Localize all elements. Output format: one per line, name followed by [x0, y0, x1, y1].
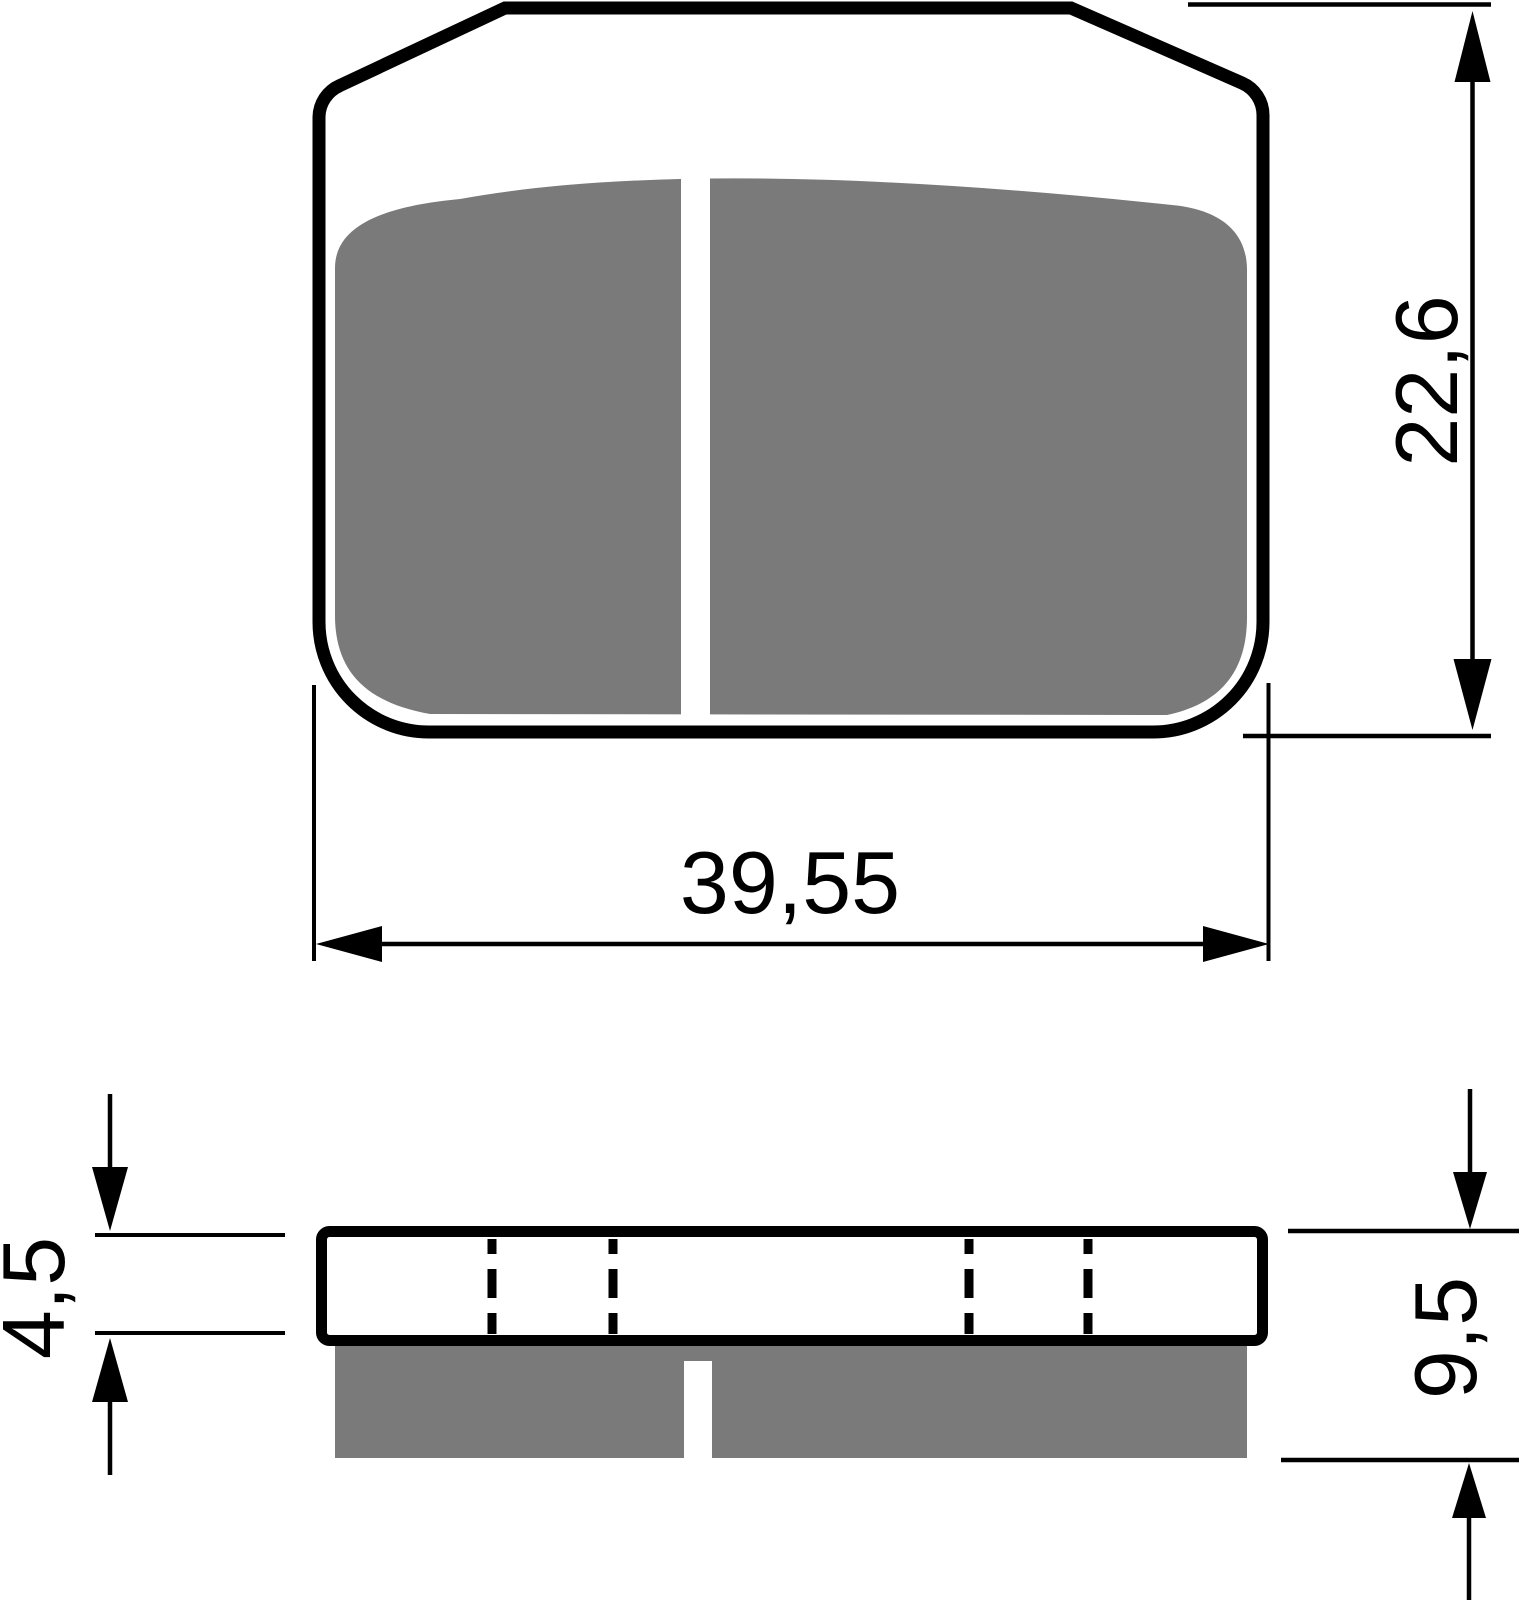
svg-text:9,5: 9,5: [1396, 1277, 1495, 1399]
svg-text:39,55: 39,55: [680, 833, 900, 932]
svg-text:4,5: 4,5: [0, 1237, 83, 1359]
svg-text:22,6: 22,6: [1377, 295, 1476, 466]
